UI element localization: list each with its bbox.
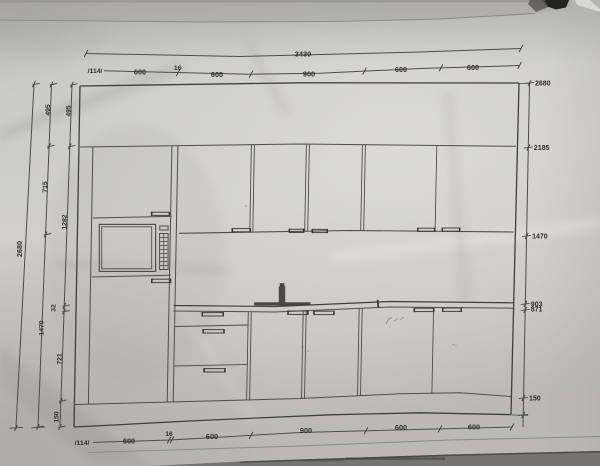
svg-text:900: 900 — [300, 426, 312, 435]
svg-text:600: 600 — [468, 423, 480, 432]
svg-text:600: 600 — [395, 65, 407, 74]
svg-text:3430: 3430 — [295, 50, 311, 59]
svg-text:600: 600 — [467, 63, 479, 72]
svg-text:32: 32 — [51, 304, 58, 312]
svg-text:721: 721 — [56, 353, 63, 365]
svg-text:600: 600 — [211, 70, 223, 79]
svg-text:495: 495 — [66, 105, 73, 117]
svg-text:1470: 1470 — [532, 234, 548, 241]
svg-text:600: 600 — [395, 423, 407, 432]
svg-text:600: 600 — [123, 437, 135, 446]
svg-text:/114/: /114/ — [75, 440, 90, 447]
svg-text:2185: 2185 — [534, 145, 550, 152]
svg-text:/114/: /114/ — [88, 68, 103, 75]
svg-text:715: 715 — [42, 181, 49, 193]
svg-text:1470: 1470 — [39, 320, 46, 335]
svg-text:150: 150 — [54, 411, 61, 423]
svg-text:2680: 2680 — [15, 241, 24, 257]
svg-text:1282: 1282 — [62, 214, 69, 229]
svg-text:16: 16 — [165, 431, 173, 438]
svg-text:871: 871 — [531, 307, 543, 314]
svg-text:150: 150 — [529, 396, 541, 403]
svg-text:2680: 2680 — [535, 81, 551, 88]
svg-text:16: 16 — [174, 65, 182, 72]
svg-text:600: 600 — [206, 432, 218, 441]
svg-text:900: 900 — [303, 70, 315, 79]
svg-text:600: 600 — [134, 68, 146, 77]
svg-text:495: 495 — [45, 104, 52, 116]
